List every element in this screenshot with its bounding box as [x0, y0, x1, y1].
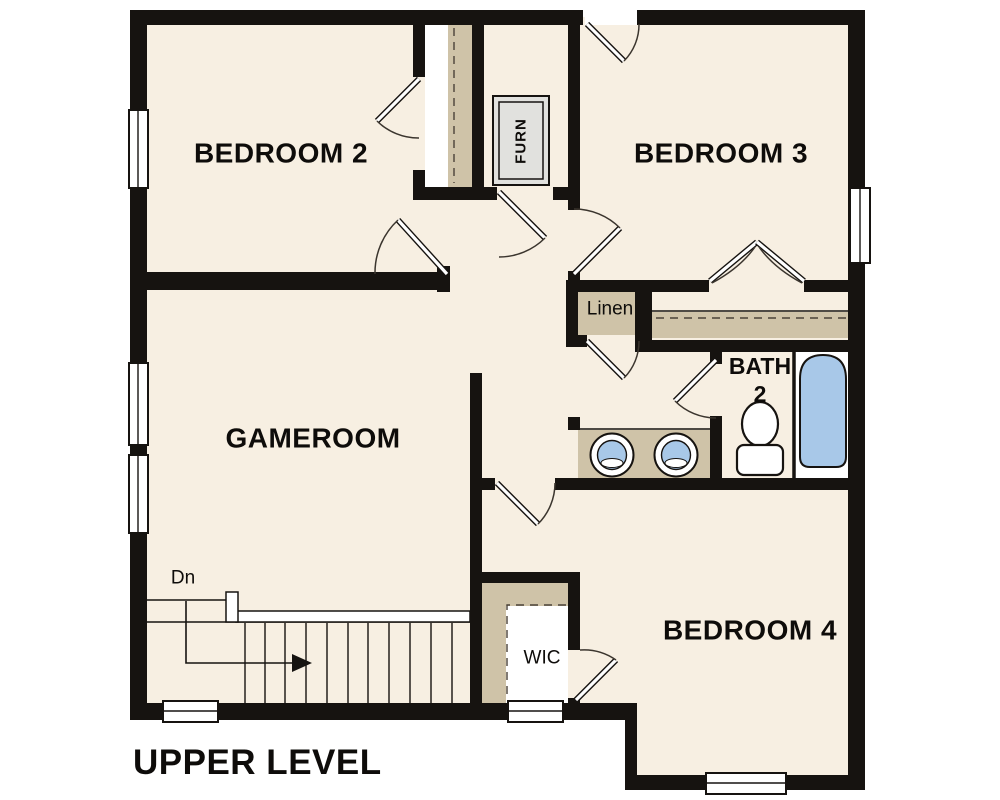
page-title: UPPER LEVEL	[133, 743, 382, 782]
floor-plan-drawing: FURN BEDROOM 2 BEDROOM 3 GAMEROOM BEDROO…	[0, 0, 1000, 800]
bath2-label-line2: 2	[754, 381, 767, 407]
stair-handrail	[236, 611, 470, 622]
window-gameroom-left-upper	[129, 363, 148, 445]
sink-left	[591, 434, 634, 477]
furnace-unit: FURN	[493, 96, 549, 185]
linen-label: Linen	[587, 299, 634, 320]
bedroom2-closet-shelf	[448, 25, 472, 187]
window-bedroom2-left	[129, 110, 148, 188]
stair-newel	[226, 592, 238, 622]
window-bedroom4-bottom	[706, 773, 786, 794]
floor-plan-page: FURN BEDROOM 2 BEDROOM 3 GAMEROOM BEDROO…	[0, 0, 1000, 800]
window-bedroom3-right	[850, 188, 870, 263]
bedroom4-label: BEDROOM 4	[663, 615, 837, 646]
bedroom2-label: BEDROOM 2	[194, 138, 368, 169]
bedroom3-closet-shelf	[652, 312, 848, 338]
window-wic-bottom	[508, 701, 563, 722]
window-gameroom-left-lower	[129, 455, 148, 533]
sink-right	[655, 434, 698, 477]
furnace-label: FURN	[513, 118, 530, 164]
gameroom-label: GAMEROOM	[225, 423, 400, 454]
window-stairs-bottom	[163, 701, 218, 722]
bedroom2-closet-floor	[425, 25, 448, 187]
wic-label: WIC	[524, 648, 561, 669]
stairs-down-label: Dn	[171, 568, 195, 589]
bath2-label-line1: BATH	[729, 353, 791, 379]
bedroom3-label: BEDROOM 3	[634, 138, 808, 169]
bathtub	[800, 355, 846, 467]
